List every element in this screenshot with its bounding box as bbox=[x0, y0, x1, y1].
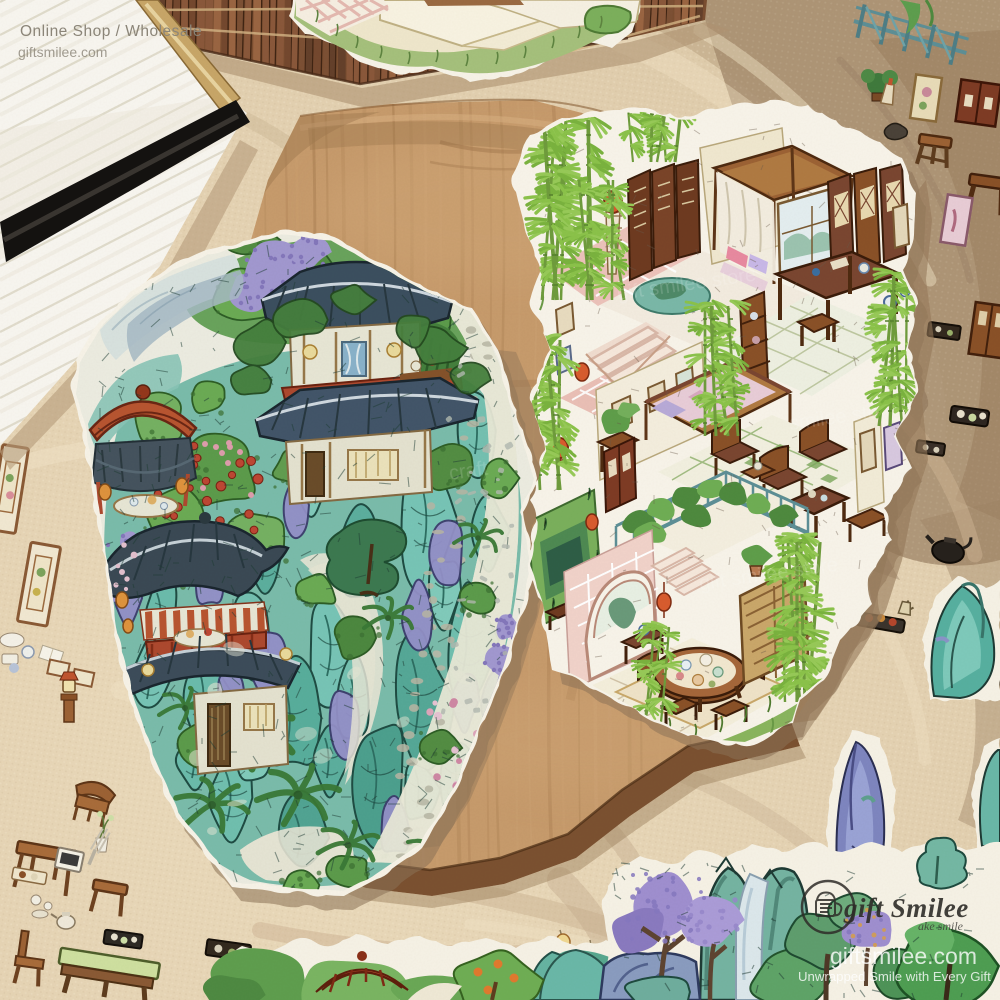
svg-text:Online Shop / Wholesale: Online Shop / Wholesale bbox=[20, 23, 202, 40]
svg-text:giftsmilee.com: giftsmilee.com bbox=[830, 943, 977, 969]
svg-text:ake smile: ake smile bbox=[918, 919, 964, 933]
svg-text:giftsmilee.com: giftsmilee.com bbox=[18, 44, 107, 60]
svg-text:Unwrapped Smile with Every Gif: Unwrapped Smile with Every Gift bbox=[798, 969, 991, 984]
